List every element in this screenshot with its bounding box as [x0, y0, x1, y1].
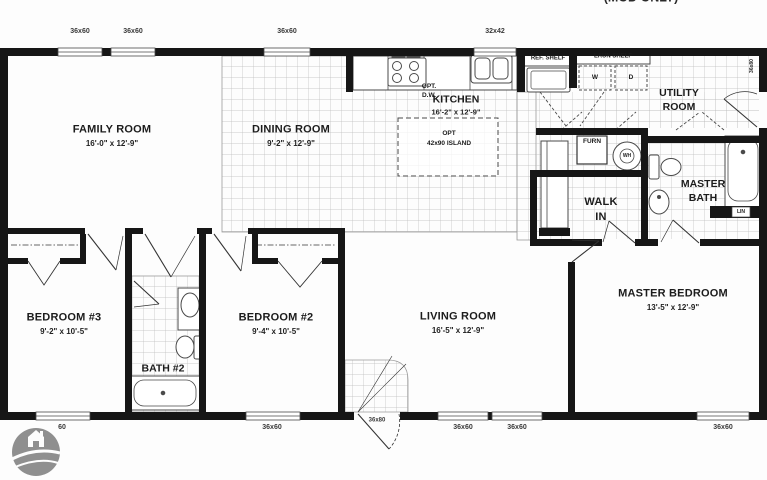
window-36x60-family-1: [58, 48, 102, 56]
bedroom3-closet-door: [28, 261, 60, 285]
opt-dw-label2: D.W.: [422, 92, 436, 100]
walkin-line1: WALK: [584, 195, 617, 210]
bedroom3-door: [88, 234, 123, 270]
master-tub-icon: [725, 136, 761, 208]
laun-shelf-label: LAUN SHELF: [594, 53, 632, 60]
room-label-bedroom2: BEDROOM #2: [239, 311, 314, 324]
island-label2: 42x90 ISLAND: [427, 140, 471, 148]
builder-logo: [12, 428, 60, 476]
entry-tile: [345, 360, 408, 412]
walkin-line2: IN: [584, 210, 617, 225]
opt-dw-label: OPT.: [422, 83, 436, 91]
bath2-toilet-icon: [176, 336, 203, 359]
washer-label: W: [592, 74, 598, 82]
plan-note: (MOD ONLY): [604, 0, 679, 6]
bath2-sink-icon: [178, 288, 202, 330]
utility-line2: ROOM: [659, 100, 699, 114]
window-label: 36x60: [507, 424, 526, 432]
window-label: 60: [58, 424, 66, 432]
island-label: OPT: [442, 130, 455, 138]
window-32x42-kitchen: [474, 48, 516, 56]
floor-plan-drawing: [0, 0, 767, 480]
window-36x60-living-1: [438, 412, 488, 420]
window-36x60-master: [697, 412, 749, 420]
room-label-bath2: BATH #2: [142, 363, 185, 376]
window-36x60-family-2: [111, 48, 155, 56]
room-label-family: FAMILY ROOM: [73, 123, 152, 136]
window-label: 36x60: [453, 424, 472, 432]
bedroom2-door: [214, 234, 246, 271]
side-door-label: 36x80: [749, 59, 755, 73]
room-dims-bedroom2: 9'-4" x 10'-5": [252, 327, 300, 337]
room-dims-kitchen: 16'-2" x 12'-9": [431, 108, 480, 117]
room-label-dining: DINING ROOM: [252, 123, 330, 136]
window-36x60-bedroom2: [246, 412, 300, 420]
window-label: 36x60: [123, 28, 142, 36]
room-label-walkin: WALK IN: [584, 195, 617, 225]
front-door-label: 36x80: [369, 417, 386, 424]
room-dims-living: 16'-5" x 12'-9": [432, 326, 484, 336]
water-heater-label: WH: [623, 153, 631, 159]
room-label-utility: UTILITY ROOM: [659, 86, 699, 114]
master-sink-icon: [649, 190, 669, 214]
window-label: 36x60: [277, 28, 296, 36]
room-dims-bedroom3: 9'-2" x 10'-5": [40, 327, 88, 337]
linen-label: LIN: [737, 209, 745, 215]
masterbath-line2: BATH: [681, 191, 725, 205]
room-label-kitchen: KITCHEN: [433, 94, 480, 107]
floor-plan: (MOD ONLY) 36x60 36x60 36x60 32x42 FAMIL…: [0, 0, 767, 480]
window-60-bedroom3: [36, 412, 90, 420]
kitchen-bar-cabinet: [541, 141, 568, 228]
dryer-label: D: [629, 74, 634, 82]
bath2-tub-icon: [130, 376, 200, 410]
furnace-label: FURN: [583, 138, 601, 146]
hall-bath-door: [145, 234, 195, 277]
room-dims-dining: 9'-2" x 12'-9": [267, 139, 315, 149]
room-label-living: LIVING ROOM: [420, 310, 496, 323]
masterbath-line1: MASTER: [681, 177, 725, 191]
room-label-masterbath: MASTER BATH: [681, 177, 725, 205]
window-36x60-dining: [264, 48, 310, 56]
room-dims-master-bedroom: 13'-5" x 12'-9": [647, 303, 699, 313]
room-dims-family: 16'-0" x 12'-9": [86, 139, 138, 149]
window-label: 36x60: [70, 28, 89, 36]
window-label: 32x42: [485, 28, 504, 36]
kitchen-sink-icon: [471, 55, 512, 83]
ref-shelf-label: REF. SHELF: [531, 55, 565, 62]
room-label-master-bedroom: MASTER BEDROOM: [618, 287, 728, 300]
window-36x60-living-2: [492, 412, 542, 420]
window-label: 36x60: [713, 424, 732, 432]
utility-line1: UTILITY: [659, 86, 699, 100]
bedroom2-closet-door: [278, 261, 322, 287]
window-label: 36x60: [262, 424, 281, 432]
room-label-bedroom3: BEDROOM #3: [27, 311, 102, 324]
